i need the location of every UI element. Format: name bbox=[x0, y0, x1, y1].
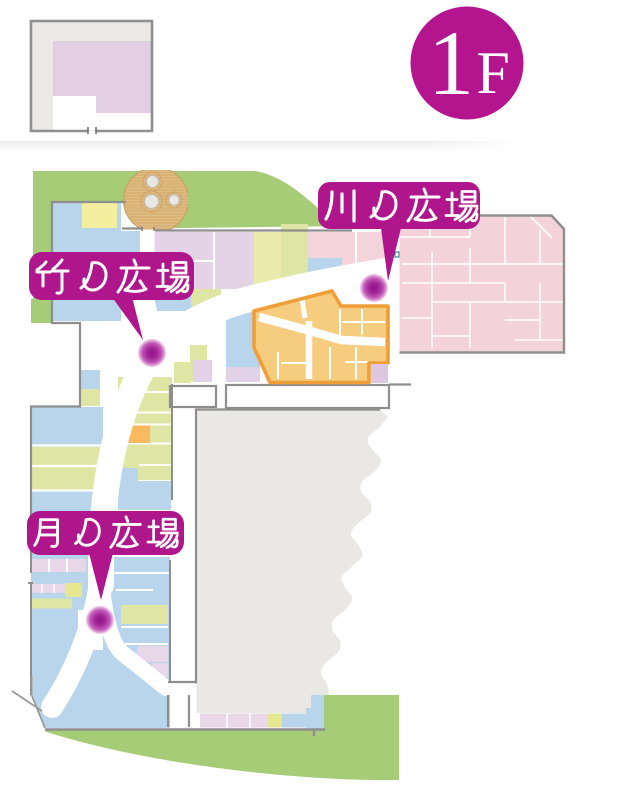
svg-text:F: F bbox=[476, 40, 509, 106]
svg-text:1: 1 bbox=[428, 12, 474, 114]
